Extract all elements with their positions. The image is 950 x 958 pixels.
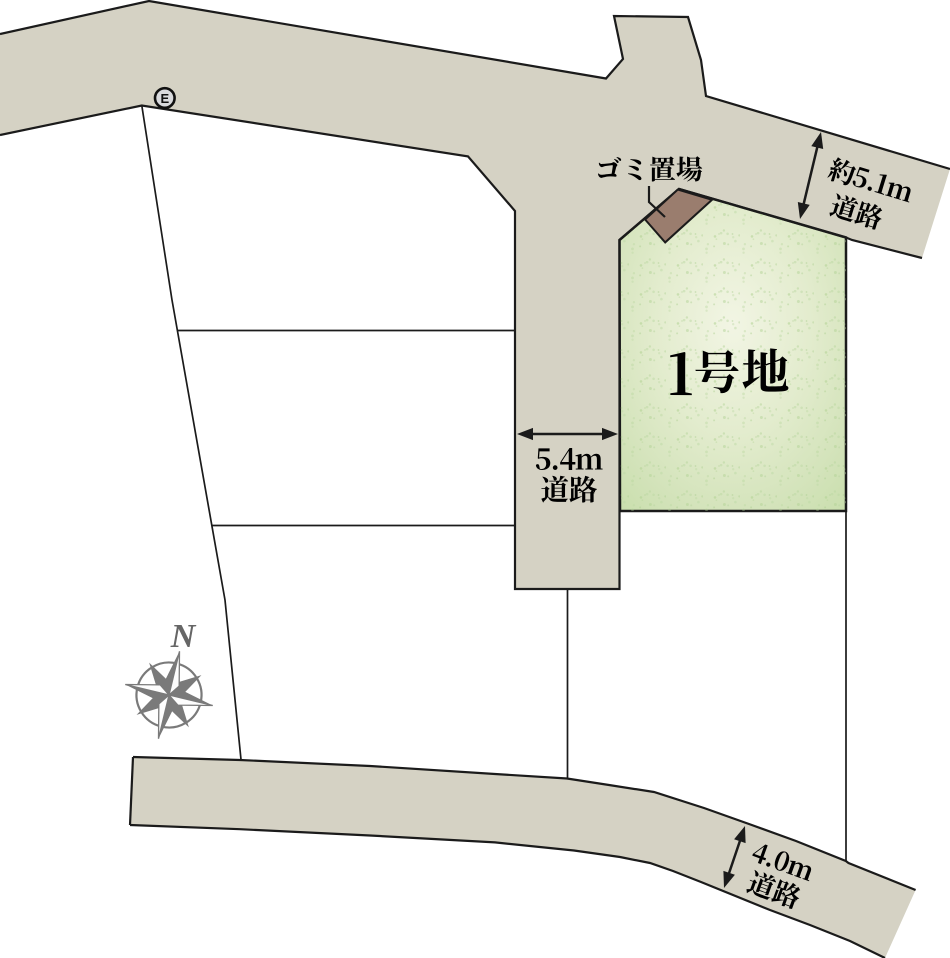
svg-text:E: E bbox=[160, 91, 169, 106]
svg-text:N: N bbox=[170, 618, 197, 655]
